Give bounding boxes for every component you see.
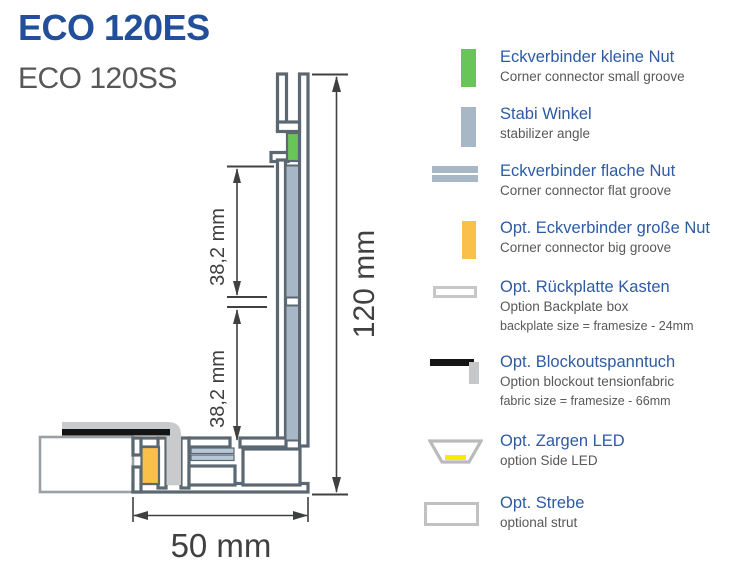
strut-icon	[424, 502, 479, 526]
dimension-label-upper-segment: 38,2 mm	[207, 208, 229, 286]
legend: Eckverbinder kleine Nut Corner connector…	[415, 0, 755, 567]
legend-subtitle: Corner connector flat groove	[500, 182, 750, 201]
legend-subtitle: optional strut	[500, 514, 750, 533]
dimension-label-lower-segment: 38,2 mm	[207, 350, 229, 428]
legend-title: Opt. Rückplatte Kasten	[500, 277, 750, 298]
corner-connector-flat-groove-bars	[191, 448, 234, 461]
page: ECO 120ES ECO 120SS	[0, 0, 756, 567]
backplate-box-icon	[433, 286, 477, 298]
corner-connector-flat-groove-icon	[432, 175, 478, 182]
legend-title: Eckverbinder kleine Nut	[500, 47, 750, 68]
blockout-fabric-icon	[430, 359, 474, 366]
legend-subtitle: Corner connector small groove	[500, 68, 750, 87]
legend-subtitle: Option blockout tensionfabric	[500, 373, 750, 392]
corner-connector-big-groove-icon	[462, 221, 476, 259]
legend-subtitle: Option Backplate box	[500, 298, 750, 317]
legend-title: Stabi Winkel	[500, 104, 750, 125]
legend-subtitle: stabilizer angle	[500, 125, 750, 144]
dimension-label-total-height: 120 mm	[348, 230, 381, 338]
legend-title: Opt. Eckverbinder große Nut	[500, 218, 750, 239]
corner-connector-small-groove-block	[287, 133, 299, 161]
blockout-fabric-icon	[469, 362, 479, 384]
stabilizer-angle-upper	[286, 166, 300, 298]
corner-connector-flat-groove-icon	[432, 166, 478, 173]
legend-note: fabric size = framesize - 66mm	[500, 392, 750, 411]
corner-connector-big-groove-block	[142, 447, 160, 484]
stabilizer-angle-lower	[286, 306, 300, 441]
side-led-icon	[428, 439, 483, 470]
strut-box	[40, 437, 133, 492]
stabilizer-angle-icon	[461, 107, 476, 147]
legend-title: Eckverbinder flache Nut	[500, 161, 750, 182]
legend-title: Opt. Zargen LED	[500, 431, 750, 452]
legend-note: backplate size = framesize - 24mm	[500, 317, 750, 336]
legend-subtitle: option Side LED	[500, 452, 750, 471]
legend-title: Opt. Strebe	[500, 493, 750, 514]
corner-connector-small-groove-icon	[461, 49, 476, 87]
legend-title: Opt. Blockoutspanntuch	[500, 352, 750, 373]
blockout-layer	[62, 429, 170, 436]
legend-subtitle: Corner connector big groove	[500, 239, 750, 258]
dimension-label-base-width: 50 mm	[171, 527, 272, 564]
